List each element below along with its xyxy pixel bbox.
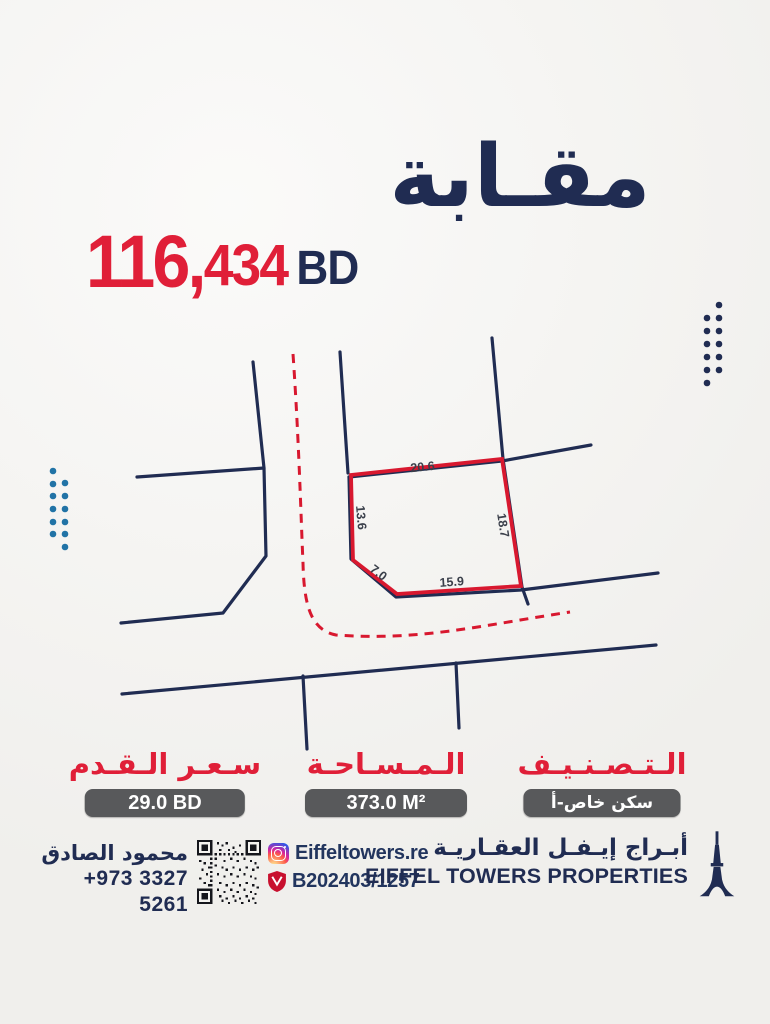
qr-code [197, 840, 261, 904]
road-line-plot-east [492, 338, 528, 604]
agent-phone: +973 3327 5261 [30, 866, 188, 918]
company-block: أبـراج إيـفـل العقـاريـة EIFFEL TOWERS P… [365, 834, 688, 890]
road-line-left [121, 362, 266, 623]
eiffel-tower-icon [692, 827, 742, 901]
instagram-icon [268, 843, 289, 864]
dimension-top: 20.6 [410, 459, 436, 475]
road-connector-2 [456, 663, 459, 728]
plot-dimensions: 20.6 13.6 18.7 7.0 15.9 [353, 459, 512, 590]
road-connector-1 [303, 676, 307, 749]
dimension-bottom: 15.9 [439, 574, 464, 590]
shield-icon [268, 871, 286, 892]
decorative-dots-right [704, 302, 723, 387]
area-label: الـمـسـاحـة [305, 746, 467, 782]
area-value: 373.0 M² [305, 789, 467, 817]
agent-name: محمود الصادق [30, 840, 188, 866]
company-name-arabic: أبـراج إيـفـل العقـاريـة [365, 834, 688, 862]
dimension-left: 13.6 [353, 505, 369, 531]
detail-area: الـمـسـاحـة 373.0 M² [305, 746, 467, 817]
road-lines [121, 338, 658, 749]
road-line-bottom [122, 645, 656, 694]
company-name-english: EIFFEL TOWERS PROPERTIES [365, 862, 688, 890]
decorative-dots-left [50, 468, 69, 551]
real-estate-flyer: مقـابة 116, 434 BD 20.6 13.6 18.7 7.0 1 [0, 0, 770, 1024]
dimension-right: 18.7 [494, 512, 512, 538]
price-per-foot-label: سـعـر الـقـدم [69, 746, 261, 782]
detail-price-per-foot: سـعـر الـقـدم 29.0 BD [69, 746, 261, 817]
instagram-icon-lens [274, 849, 282, 857]
agent-contact: محمود الصادق +973 3327 5261 [30, 840, 188, 918]
price-per-foot-value: 29.0 BD [85, 789, 245, 817]
detail-classification: الـتـصـنـيـف سكن خاص-أ [517, 746, 686, 817]
classification-label: الـتـصـنـيـف [517, 746, 686, 782]
road-line-left-branch [137, 468, 264, 477]
dimension-corner: 7.0 [367, 562, 389, 584]
instagram-icon-dot [284, 846, 286, 848]
classification-value: سكن خاص-أ [523, 789, 680, 817]
road-line-plot-north-west [340, 352, 348, 473]
